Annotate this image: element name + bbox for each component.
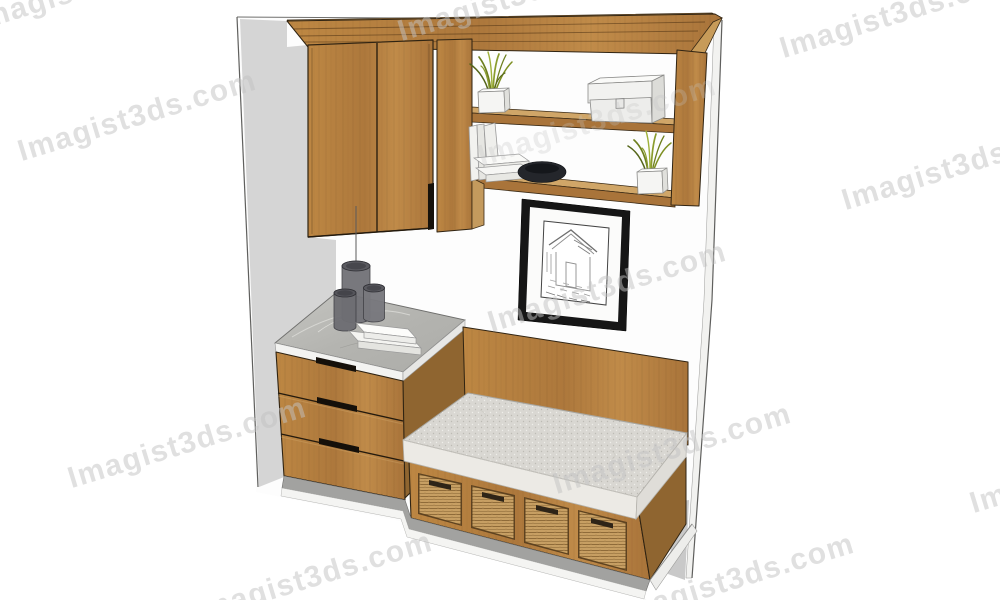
- watermark-text: Imagist3ds.com: [0, 0, 216, 38]
- black-bowl: [518, 162, 566, 183]
- post-grain: [437, 39, 472, 232]
- bowl-rim: [525, 164, 559, 174]
- furniture-render-canvas: Imagist3ds.comImagist3ds.comImagist3ds.c…: [0, 0, 1000, 600]
- canister-medium: [364, 284, 385, 322]
- product-render: Imagist3ds.comImagist3ds.comImagist3ds.c…: [0, 0, 1000, 600]
- wall-cabinet: [308, 40, 434, 237]
- planter-pot-side: [504, 88, 510, 112]
- planter-pot-side: [662, 168, 668, 193]
- planter-pot-front: [478, 91, 505, 113]
- watermark-text: Imagist3ds.com: [14, 64, 261, 168]
- watermark-text: Imagist3ds.com: [966, 416, 1000, 520]
- planter-pot-front: [637, 171, 663, 194]
- watermark-text: Imagist3ds.com: [776, 0, 1000, 65]
- canister-short: [334, 289, 356, 331]
- shelf-left-post-side: [472, 178, 484, 229]
- watermark-text: Imagist3ds.com: [190, 525, 437, 600]
- cabinet-grain: [308, 40, 433, 237]
- cabinet-door-handle: [428, 183, 434, 230]
- watermark-text: Imagist3ds.com: [838, 113, 1000, 217]
